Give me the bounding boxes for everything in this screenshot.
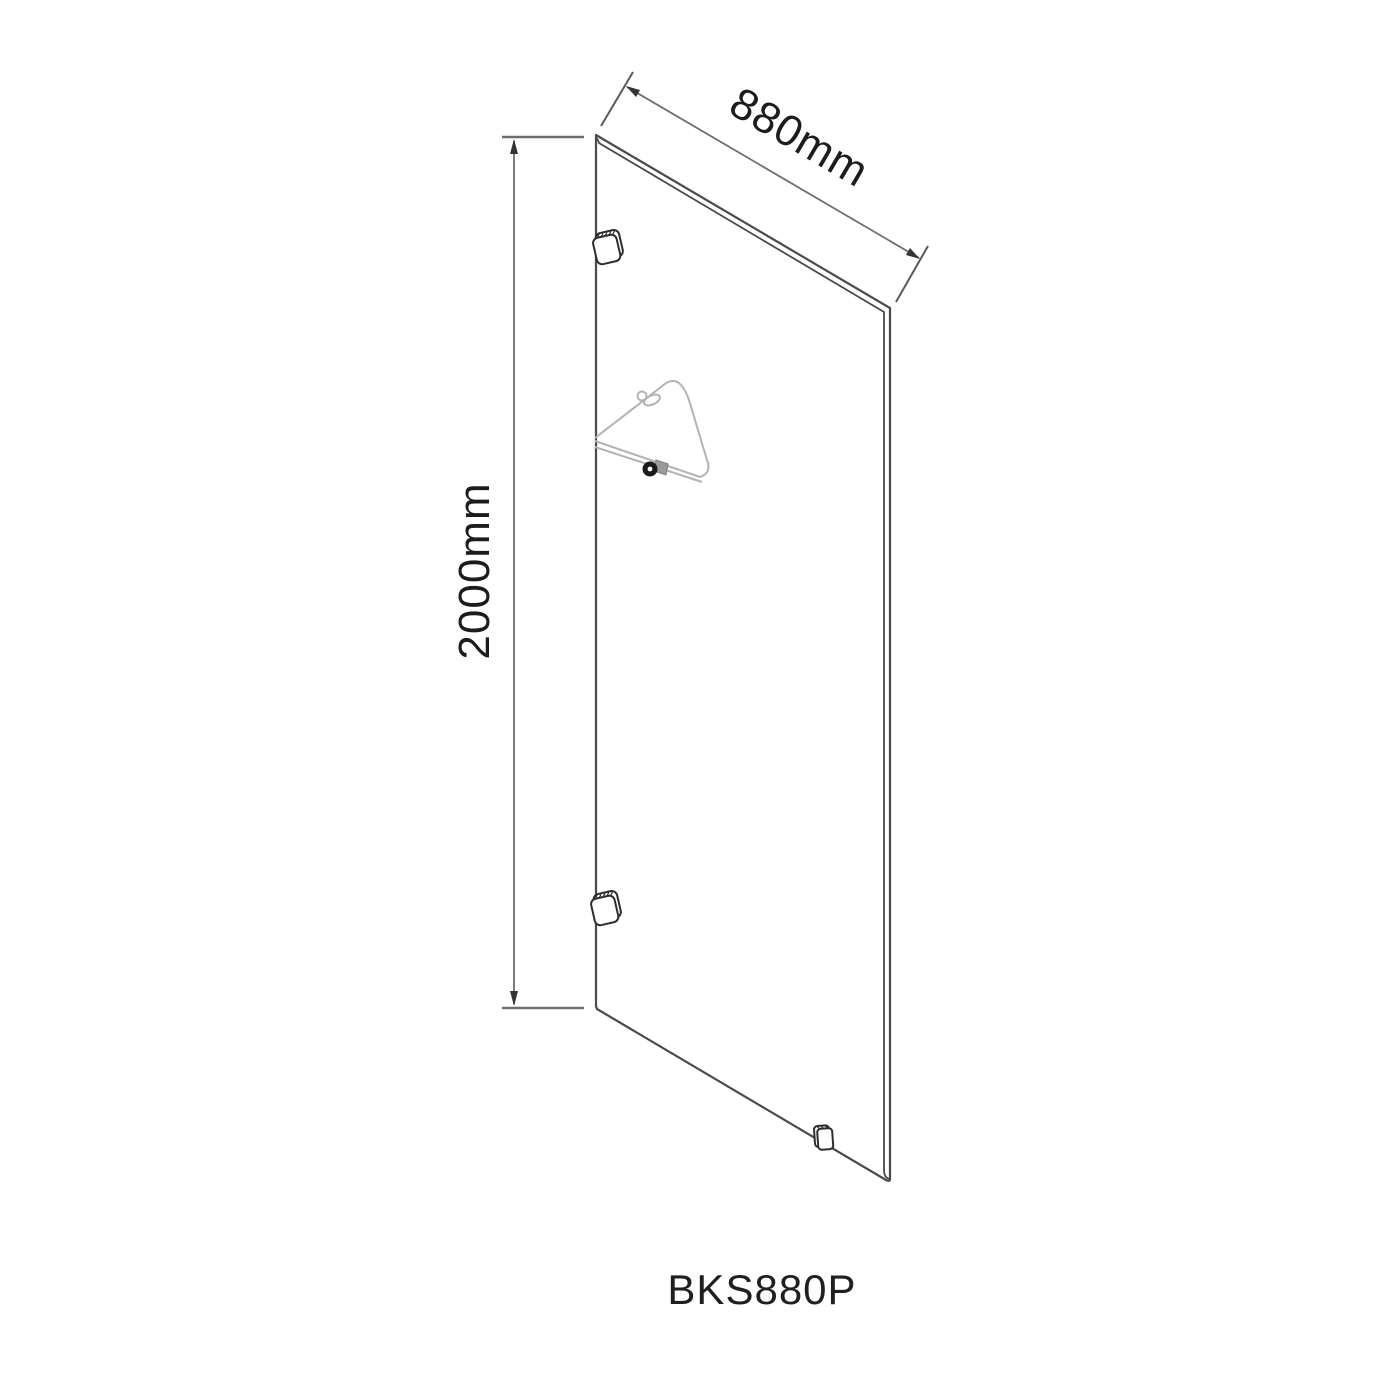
- wall-clamp-bottom: [589, 890, 623, 926]
- width-extension-tick-left: [601, 72, 633, 126]
- support-arm-knob: [643, 460, 669, 477]
- dimension-arrow-icon: [510, 139, 518, 154]
- dimension-arrow-icon: [906, 248, 920, 259]
- dimension-arrow-icon: [626, 86, 640, 97]
- wall-clamp-top: [591, 229, 625, 265]
- glass-panel: [596, 135, 890, 1181]
- shower-panel-diagram: 880mm 2000mm BKS880P: [0, 0, 1400, 1400]
- height-dimension-label: 2000mm: [450, 482, 499, 659]
- width-dimension-label: 880mm: [721, 78, 877, 197]
- floor-clamp-bottom-right: [814, 1125, 834, 1150]
- dimension-arrow-icon: [510, 991, 518, 1006]
- diagram-canvas: 880mm 2000mm BKS880P: [0, 0, 1400, 1400]
- glass-panel-outline: [596, 135, 890, 1181]
- height-dimension: 2000mm: [450, 137, 584, 1008]
- product-code-label: BKS880P: [667, 1266, 856, 1313]
